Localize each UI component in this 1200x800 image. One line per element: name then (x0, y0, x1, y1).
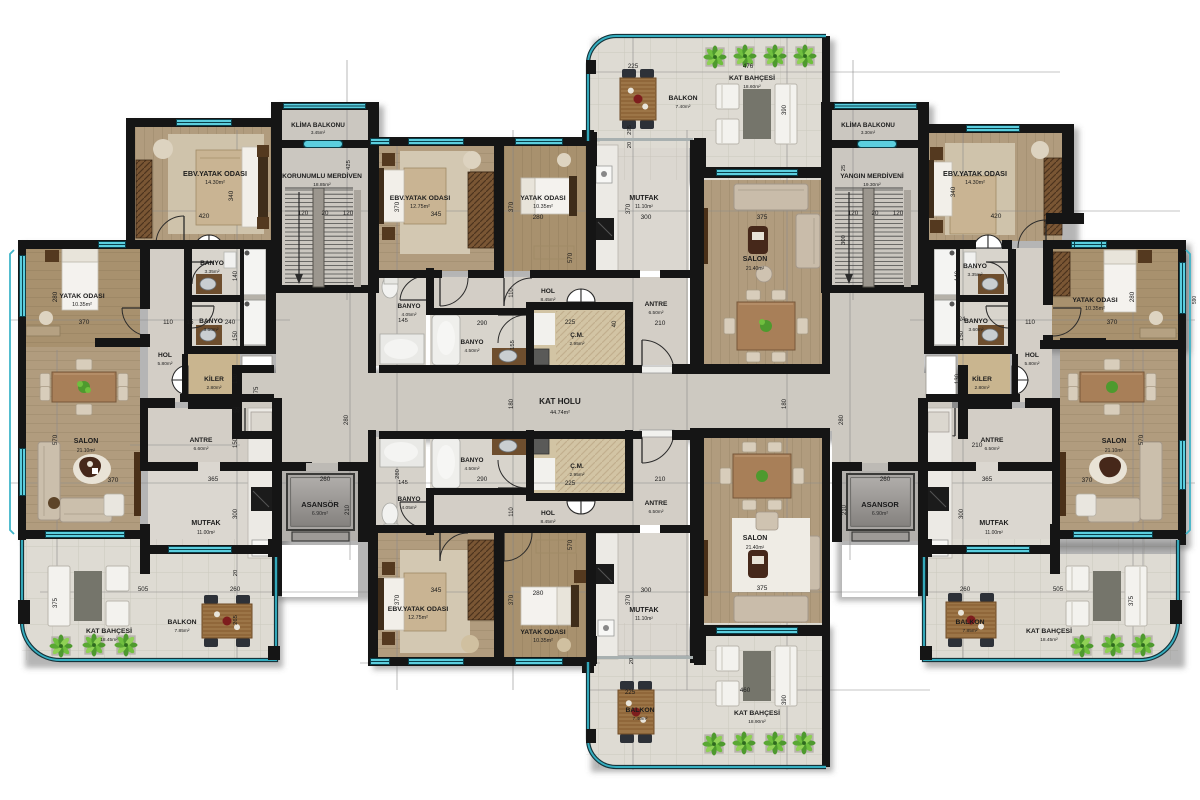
svg-text:ANTRE: ANTRE (190, 437, 213, 444)
svg-text:375: 375 (757, 585, 768, 592)
svg-text:280: 280 (627, 317, 633, 327)
svg-text:18.90m²: 18.90m² (748, 719, 766, 725)
svg-text:370: 370 (108, 477, 119, 484)
svg-text:10.35m²: 10.35m² (533, 204, 553, 210)
svg-text:ANTRE: ANTRE (645, 500, 668, 507)
svg-text:120: 120 (848, 210, 859, 217)
svg-text:SALON: SALON (743, 535, 768, 542)
svg-text:6.50m²: 6.50m² (649, 509, 664, 515)
svg-text:ASANSÖR: ASANSÖR (301, 500, 339, 509)
svg-text:20: 20 (322, 210, 329, 217)
svg-text:KAT BAHÇESİ: KAT BAHÇESİ (729, 74, 775, 82)
svg-text:505: 505 (1053, 586, 1064, 593)
svg-text:25: 25 (841, 165, 847, 171)
svg-text:2.80m²: 2.80m² (207, 385, 222, 391)
svg-text:4.50m²: 4.50m² (465, 466, 480, 472)
svg-text:180: 180 (509, 398, 515, 409)
svg-text:MUTFAK: MUTFAK (191, 520, 220, 527)
svg-text:19.30m²: 19.30m² (863, 182, 881, 188)
svg-text:3.60m²: 3.60m² (969, 327, 984, 333)
svg-text:KORUNUMLU MERDİVEN: KORUNUMLU MERDİVEN (282, 172, 362, 180)
svg-text:10.35m²: 10.35m² (533, 638, 553, 644)
svg-text:BANYO: BANYO (963, 263, 987, 270)
svg-text:120: 120 (298, 210, 309, 217)
svg-text:SALON: SALON (743, 256, 768, 263)
svg-text:75: 75 (254, 386, 260, 393)
svg-text:6.50m²: 6.50m² (649, 310, 664, 316)
svg-text:YATAK ODASI: YATAK ODASI (520, 195, 565, 202)
svg-text:ASANSOR: ASANSOR (861, 500, 899, 509)
svg-text:20: 20 (872, 210, 879, 217)
svg-text:MUTFAK: MUTFAK (979, 520, 1008, 527)
svg-text:3.35m²: 3.35m² (205, 269, 220, 275)
svg-text:110: 110 (163, 319, 173, 326)
svg-text:SALON: SALON (74, 438, 99, 445)
svg-text:YATAK ODASI: YATAK ODASI (1072, 297, 1117, 304)
svg-text:6.90m²: 6.90m² (312, 511, 328, 517)
svg-text:18.85m²: 18.85m² (313, 182, 331, 188)
svg-text:YATAK ODASI: YATAK ODASI (520, 629, 565, 636)
svg-text:260: 260 (880, 476, 891, 483)
svg-text:21.10m²: 21.10m² (77, 448, 96, 454)
svg-text:BALKON: BALKON (625, 707, 654, 714)
svg-text:20: 20 (627, 142, 633, 148)
svg-text:120: 120 (343, 210, 354, 217)
svg-text:570: 570 (1138, 434, 1145, 445)
svg-text:375: 375 (757, 214, 768, 221)
svg-text:110: 110 (509, 507, 515, 517)
svg-text:140: 140 (233, 270, 239, 281)
svg-text:370: 370 (394, 201, 401, 212)
svg-text:18.45m²: 18.45m² (1040, 637, 1058, 643)
svg-text:300: 300 (233, 508, 239, 519)
svg-text:4.50m²: 4.50m² (465, 348, 480, 354)
svg-text:370: 370 (1107, 319, 1118, 326)
svg-text:7.40m²: 7.40m² (676, 104, 691, 110)
svg-text:Ç.M.: Ç.M. (570, 332, 584, 339)
svg-text:21.40m²: 21.40m² (746, 545, 765, 551)
svg-text:6.50m²: 6.50m² (985, 446, 1000, 452)
svg-text:345: 345 (431, 587, 442, 594)
svg-text:EBV.YATAK ODASI: EBV.YATAK ODASI (183, 169, 247, 178)
svg-text:130: 130 (955, 373, 961, 384)
svg-text:280: 280 (1129, 291, 1136, 302)
svg-text:365: 365 (208, 476, 219, 483)
svg-text:365: 365 (982, 476, 993, 483)
svg-text:130: 130 (233, 373, 239, 384)
svg-text:370: 370 (1082, 477, 1093, 484)
svg-text:390: 390 (782, 694, 788, 705)
svg-text:145: 145 (398, 318, 408, 324)
svg-text:BANYO: BANYO (397, 496, 420, 503)
svg-text:225: 225 (628, 63, 639, 70)
svg-text:210: 210 (345, 504, 351, 515)
svg-text:290: 290 (477, 476, 488, 483)
svg-text:HOL: HOL (541, 510, 555, 517)
svg-text:260: 260 (960, 586, 971, 593)
svg-text:BANYO: BANYO (397, 303, 420, 310)
svg-text:2.95m²: 2.95m² (570, 472, 585, 478)
svg-text:4.05m²: 4.05m² (402, 505, 417, 511)
svg-text:280: 280 (533, 214, 544, 221)
svg-text:8.45m²: 8.45m² (541, 519, 556, 525)
svg-text:590: 590 (1192, 296, 1198, 305)
svg-text:11.00m²: 11.00m² (197, 530, 215, 536)
svg-text:265: 265 (233, 615, 239, 625)
svg-text:3.35m²: 3.35m² (968, 272, 983, 278)
svg-text:476: 476 (743, 63, 754, 70)
svg-text:110: 110 (1025, 319, 1035, 326)
svg-text:40: 40 (612, 320, 618, 327)
svg-text:11.10m²: 11.10m² (635, 204, 653, 210)
svg-text:18.45m²: 18.45m² (100, 637, 118, 643)
svg-text:570: 570 (567, 252, 574, 263)
svg-text:6.90m²: 6.90m² (872, 511, 888, 517)
svg-text:ANTRE: ANTRE (645, 301, 668, 308)
svg-text:425: 425 (346, 160, 352, 170)
svg-text:11.00m²: 11.00m² (985, 530, 1003, 536)
svg-text:370: 370 (625, 203, 632, 214)
svg-text:140: 140 (955, 270, 961, 281)
svg-text:24: 24 (959, 317, 966, 323)
svg-text:Ç.M.: Ç.M. (570, 463, 584, 470)
svg-text:390: 390 (782, 104, 788, 115)
svg-text:370: 370 (508, 594, 515, 605)
svg-text:420: 420 (199, 213, 210, 220)
svg-text:3.45m²: 3.45m² (311, 130, 326, 135)
svg-text:7.40m²: 7.40m² (633, 716, 648, 722)
svg-text:BANYO: BANYO (964, 318, 988, 325)
svg-text:3.30m²: 3.30m² (861, 130, 876, 135)
svg-text:20: 20 (629, 658, 635, 664)
svg-text:5.80m²: 5.80m² (158, 361, 173, 367)
svg-text:KLİMA BALKONU: KLİMA BALKONU (291, 120, 345, 129)
svg-text:225: 225 (565, 319, 576, 326)
svg-text:370: 370 (508, 201, 515, 212)
svg-text:10.35m²: 10.35m² (1085, 306, 1105, 312)
svg-text:340: 340 (228, 190, 235, 201)
svg-text:570: 570 (52, 434, 59, 445)
svg-text:18.60m²: 18.60m² (743, 84, 761, 90)
svg-text:12.75m²: 12.75m² (410, 204, 430, 210)
svg-text:HOL: HOL (1025, 352, 1039, 359)
svg-text:8.45m²: 8.45m² (541, 297, 556, 303)
svg-text:260: 260 (320, 476, 331, 483)
svg-text:BALKON: BALKON (955, 619, 984, 626)
svg-text:210: 210 (655, 320, 666, 327)
svg-text:EBV.YATAK ODASI: EBV.YATAK ODASI (943, 169, 1007, 178)
svg-text:290: 290 (477, 320, 488, 327)
svg-text:2.80m²: 2.80m² (975, 385, 990, 391)
svg-text:21.40m²: 21.40m² (746, 266, 765, 272)
svg-text:345: 345 (431, 211, 442, 218)
svg-text:210: 210 (842, 504, 848, 515)
svg-text:6.60m²: 6.60m² (194, 446, 209, 452)
svg-text:240: 240 (225, 319, 236, 326)
svg-text:7.85m²: 7.85m² (175, 628, 190, 634)
svg-text:150: 150 (959, 330, 965, 341)
svg-text:300: 300 (641, 214, 652, 221)
svg-text:12.75m²: 12.75m² (408, 615, 428, 621)
svg-text:BALKON: BALKON (167, 619, 196, 626)
svg-text:HOL: HOL (158, 352, 172, 359)
svg-text:145: 145 (398, 480, 408, 486)
svg-text:155: 155 (510, 340, 516, 350)
svg-text:MUTFAK: MUTFAK (629, 195, 658, 202)
svg-text:HOL: HOL (541, 288, 555, 295)
svg-text:225: 225 (565, 480, 576, 487)
svg-text:300: 300 (959, 508, 965, 519)
svg-text:KAT HOLU: KAT HOLU (539, 397, 581, 406)
svg-text:YATAK ODASI: YATAK ODASI (59, 293, 104, 300)
svg-text:420: 420 (991, 213, 1002, 220)
svg-text:15: 15 (187, 319, 194, 326)
svg-text:280: 280 (395, 469, 401, 479)
svg-text:44.74m²: 44.74m² (550, 410, 570, 416)
svg-text:110: 110 (509, 288, 515, 298)
svg-text:BANYO: BANYO (460, 457, 483, 464)
svg-text:KAT BAHÇESİ: KAT BAHÇESİ (86, 627, 132, 635)
svg-text:280: 280 (344, 414, 350, 425)
svg-text:340: 340 (950, 186, 957, 197)
svg-text:11.10m²: 11.10m² (635, 616, 653, 622)
svg-text:EBV.YATAK ODASI: EBV.YATAK ODASI (388, 606, 449, 613)
svg-text:2.95m²: 2.95m² (570, 341, 585, 347)
svg-text:375: 375 (1129, 595, 1135, 606)
svg-text:40: 40 (236, 407, 242, 413)
svg-text:150: 150 (233, 437, 239, 448)
svg-text:20: 20 (233, 570, 239, 576)
svg-text:210: 210 (655, 476, 666, 483)
svg-text:BANYO: BANYO (199, 318, 223, 325)
svg-text:300: 300 (641, 587, 652, 594)
svg-text:BANYO: BANYO (200, 260, 224, 267)
svg-text:370: 370 (79, 319, 90, 326)
svg-text:225: 225 (625, 689, 636, 696)
svg-text:SALON: SALON (1102, 438, 1127, 445)
svg-text:460: 460 (740, 687, 751, 694)
svg-text:570: 570 (567, 539, 574, 550)
svg-text:KİLER: KİLER (204, 375, 224, 383)
svg-text:370: 370 (625, 594, 632, 605)
svg-text:KLİMA BALKONU: KLİMA BALKONU (841, 120, 895, 129)
svg-text:280: 280 (839, 414, 845, 425)
svg-text:14.30m²: 14.30m² (205, 180, 225, 186)
svg-text:150: 150 (233, 330, 239, 341)
svg-text:MUTFAK: MUTFAK (629, 607, 658, 614)
svg-text:KAT BAHÇESİ: KAT BAHÇESİ (734, 709, 780, 717)
svg-text:BALKON: BALKON (668, 95, 697, 102)
svg-text:7.85m²: 7.85m² (963, 628, 978, 634)
svg-text:505: 505 (138, 586, 149, 593)
svg-text:280: 280 (52, 291, 59, 302)
svg-text:KAT BAHÇESİ: KAT BAHÇESİ (1026, 627, 1072, 635)
svg-text:21.10m²: 21.10m² (1105, 448, 1124, 454)
svg-text:375: 375 (53, 597, 59, 608)
svg-text:YANGIN MERDİVENİ: YANGIN MERDİVENİ (840, 172, 904, 180)
svg-text:14.30m²: 14.30m² (965, 180, 985, 186)
svg-text:BANYO: BANYO (460, 339, 483, 346)
svg-text:10.35m²: 10.35m² (72, 302, 92, 308)
svg-text:295: 295 (627, 125, 633, 135)
svg-text:ANTRE: ANTRE (981, 437, 1004, 444)
svg-text:260: 260 (230, 586, 241, 593)
svg-text:300: 300 (841, 235, 847, 245)
svg-text:120: 120 (893, 210, 904, 217)
svg-text:280: 280 (533, 590, 544, 597)
svg-text:180: 180 (782, 398, 788, 409)
svg-text:5.80m²: 5.80m² (1025, 361, 1040, 367)
svg-text:3.60m²: 3.60m² (204, 327, 219, 333)
svg-text:KİLER: KİLER (972, 375, 992, 383)
svg-text:210: 210 (972, 442, 983, 449)
svg-text:370: 370 (394, 594, 401, 605)
svg-text:EBV.YATAK ODASI: EBV.YATAK ODASI (390, 195, 451, 202)
